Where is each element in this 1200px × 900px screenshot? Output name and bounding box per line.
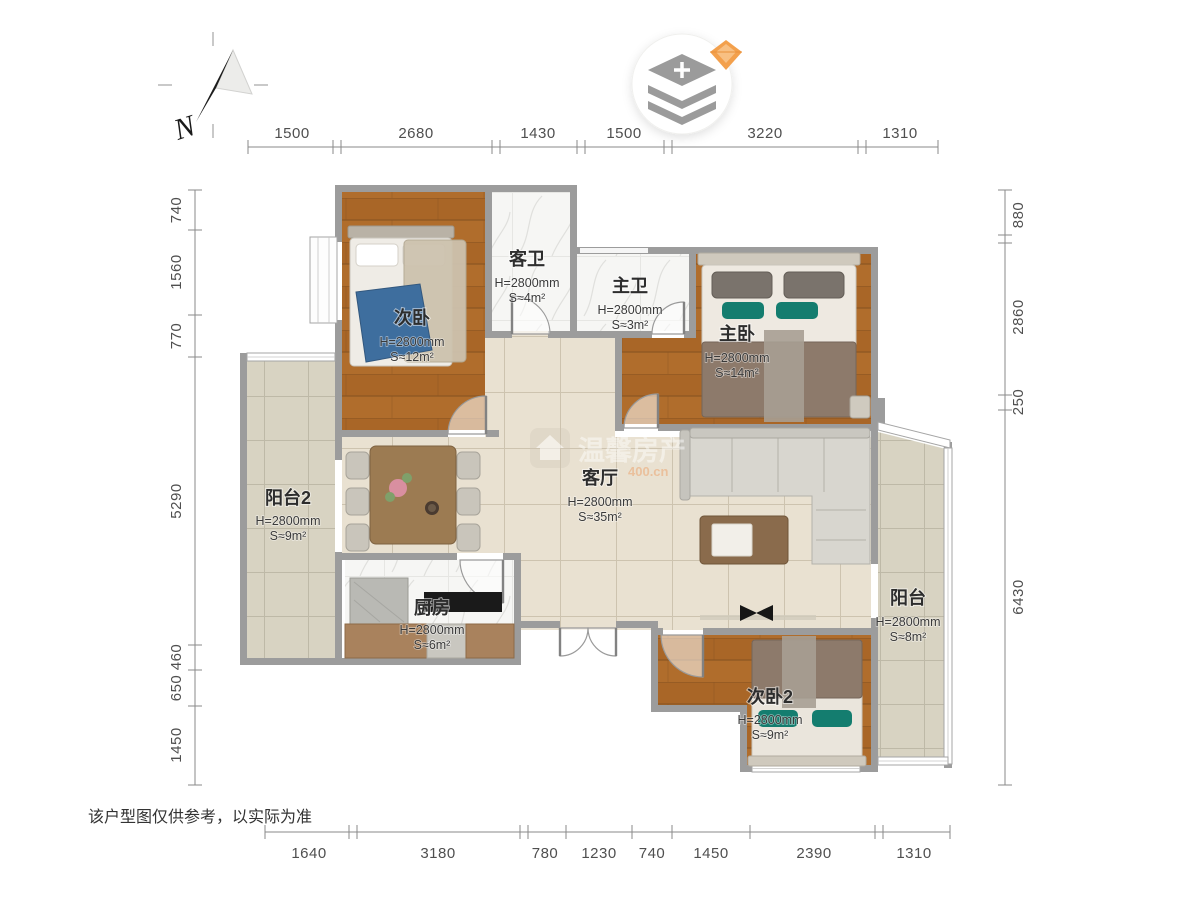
dim-right-3: 250 (1010, 389, 1027, 416)
dim-line-right (998, 190, 1012, 785)
svg-text:S≈35m²: S≈35m² (578, 510, 622, 524)
bay-window-bedroom2 (310, 237, 337, 323)
svg-text:H=2800mm: H=2800mm (256, 514, 321, 528)
dim-bottom-7: 2390 (796, 845, 831, 862)
floorplan-canvas: N (0, 0, 1200, 900)
dim-left-7: 1450 (168, 727, 185, 762)
svg-text:H=2800mm: H=2800mm (705, 351, 770, 365)
floor-balcony-2 (247, 361, 335, 658)
dim-line-bottom (265, 825, 950, 839)
svg-text:H=2800mm: H=2800mm (598, 303, 663, 317)
svg-text:S≈4m²: S≈4m² (509, 291, 546, 305)
svg-text:厨房: 厨房 (414, 597, 450, 618)
floorplan-page: N (0, 0, 1200, 900)
dim-left-5: 460 (168, 644, 185, 671)
entry-door-right (588, 628, 616, 656)
entry-door-left (560, 628, 588, 656)
dim-left-2: 1560 (168, 254, 185, 289)
svg-text:次卧2: 次卧2 (747, 686, 793, 707)
dimension-labels-right: 880 2860 250 6430 (1010, 202, 1027, 615)
dim-left-3: 770 (168, 323, 185, 350)
dim-right-4: 6430 (1010, 579, 1027, 614)
svg-text:S≈9m²: S≈9m² (752, 728, 789, 742)
dim-bottom-4: 1230 (581, 845, 616, 862)
window-masterbath-top (580, 248, 648, 253)
dim-top-4: 1500 (606, 125, 641, 142)
dim-top-1: 1500 (274, 125, 309, 142)
svg-text:S≈3m²: S≈3m² (612, 318, 649, 332)
floor-hallway (485, 331, 615, 441)
dim-right-1: 880 (1010, 202, 1027, 229)
svg-text:H=2800mm: H=2800mm (400, 623, 465, 637)
watermark-domain: 400.cn (628, 464, 669, 479)
svg-text:S≈6m²: S≈6m² (414, 638, 451, 652)
dim-left-6: 650 (168, 675, 185, 702)
svg-text:主卫: 主卫 (612, 275, 648, 296)
svg-text:次卧: 次卧 (394, 307, 430, 328)
svg-text:客卫: 客卫 (509, 248, 545, 269)
svg-text:阳台: 阳台 (890, 587, 926, 608)
svg-text:H=2800mm: H=2800mm (380, 335, 445, 349)
svg-text:H=2800mm: H=2800mm (568, 495, 633, 509)
dining-set (346, 446, 480, 551)
dim-bottom-5: 740 (639, 845, 666, 862)
dim-top-5: 3220 (747, 125, 782, 142)
dim-top-6: 1310 (882, 125, 917, 142)
dim-bottom-2: 3180 (420, 845, 455, 862)
compass-arrow-shadow (216, 50, 252, 94)
dim-bottom-3: 780 (532, 845, 559, 862)
compass-north-label: N (169, 108, 201, 146)
svg-text:主卧: 主卧 (719, 323, 755, 344)
svg-text:客厅: 客厅 (582, 467, 618, 488)
window-balcony-right (944, 448, 952, 764)
window-balcony2-top (247, 353, 335, 361)
svg-text:S≈12m²: S≈12m² (390, 350, 434, 364)
dimension-labels-left: 740 1560 770 5290 460 650 1450 (168, 197, 185, 763)
dim-line-left (188, 190, 202, 785)
dimension-labels-top: 1500 2680 1430 1500 3220 1310 (274, 125, 917, 142)
svg-text:H=2800mm: H=2800mm (738, 713, 803, 727)
dim-top-2: 2680 (398, 125, 433, 142)
svg-text:S≈8m²: S≈8m² (890, 630, 927, 644)
svg-text:H=2800mm: H=2800mm (876, 615, 941, 629)
disclaimer-text: 该户型图仅供参考，以实际为准 (88, 808, 312, 826)
watermark-name: 温馨房产 (578, 436, 686, 466)
dim-bottom-6: 1450 (693, 845, 728, 862)
dim-top-3: 1430 (520, 125, 555, 142)
brand-logo (632, 34, 742, 134)
dim-bottom-1: 1640 (291, 845, 326, 862)
svg-text:H=2800mm: H=2800mm (495, 276, 560, 290)
svg-text:S≈14m²: S≈14m² (715, 366, 759, 380)
dim-line-top (248, 140, 938, 154)
dim-left-1: 740 (168, 197, 185, 224)
compass: N (158, 32, 268, 147)
dim-bottom-8: 1310 (896, 845, 931, 862)
dim-right-2: 2860 (1010, 299, 1027, 334)
dim-left-4: 5290 (168, 483, 185, 518)
svg-text:阳台2: 阳台2 (265, 487, 311, 508)
svg-text:S≈9m²: S≈9m² (270, 529, 307, 543)
coffee-table (700, 516, 788, 564)
window-balcony-bottom (878, 757, 948, 765)
dimension-labels-bottom: 1640 3180 780 1230 740 1450 2390 1310 (291, 845, 931, 862)
